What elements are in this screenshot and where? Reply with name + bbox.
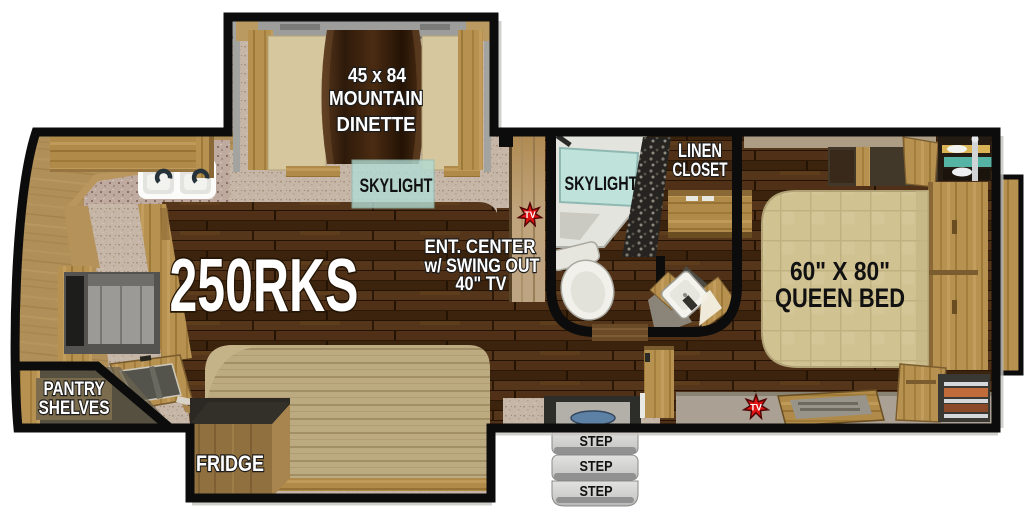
svg-text:PANTRY: PANTRY [44, 379, 105, 400]
svg-text:MOUNTAIN: MOUNTAIN [329, 88, 423, 110]
svg-text:FRIDGE: FRIDGE [196, 451, 264, 476]
svg-text:45 x 84: 45 x 84 [348, 65, 407, 87]
svg-text:LINEN: LINEN [678, 141, 722, 162]
svg-text:STEP: STEP [580, 433, 613, 450]
svg-text:40" TV: 40" TV [456, 273, 507, 295]
svg-text:QUEEN BED: QUEEN BED [775, 283, 905, 313]
svg-text:60" X 80": 60" X 80" [790, 256, 890, 286]
svg-text:250RKS: 250RKS [170, 243, 359, 327]
svg-text:STEP: STEP [580, 483, 613, 500]
svg-text:SKYLIGHT: SKYLIGHT [360, 176, 433, 197]
svg-text:SHELVES: SHELVES [39, 398, 110, 419]
svg-text:STEP: STEP [580, 458, 613, 475]
svg-text:DINETTE: DINETTE [337, 114, 416, 136]
svg-text:SKYLIGHT: SKYLIGHT [565, 174, 638, 195]
svg-text:CLOSET: CLOSET [673, 160, 728, 181]
